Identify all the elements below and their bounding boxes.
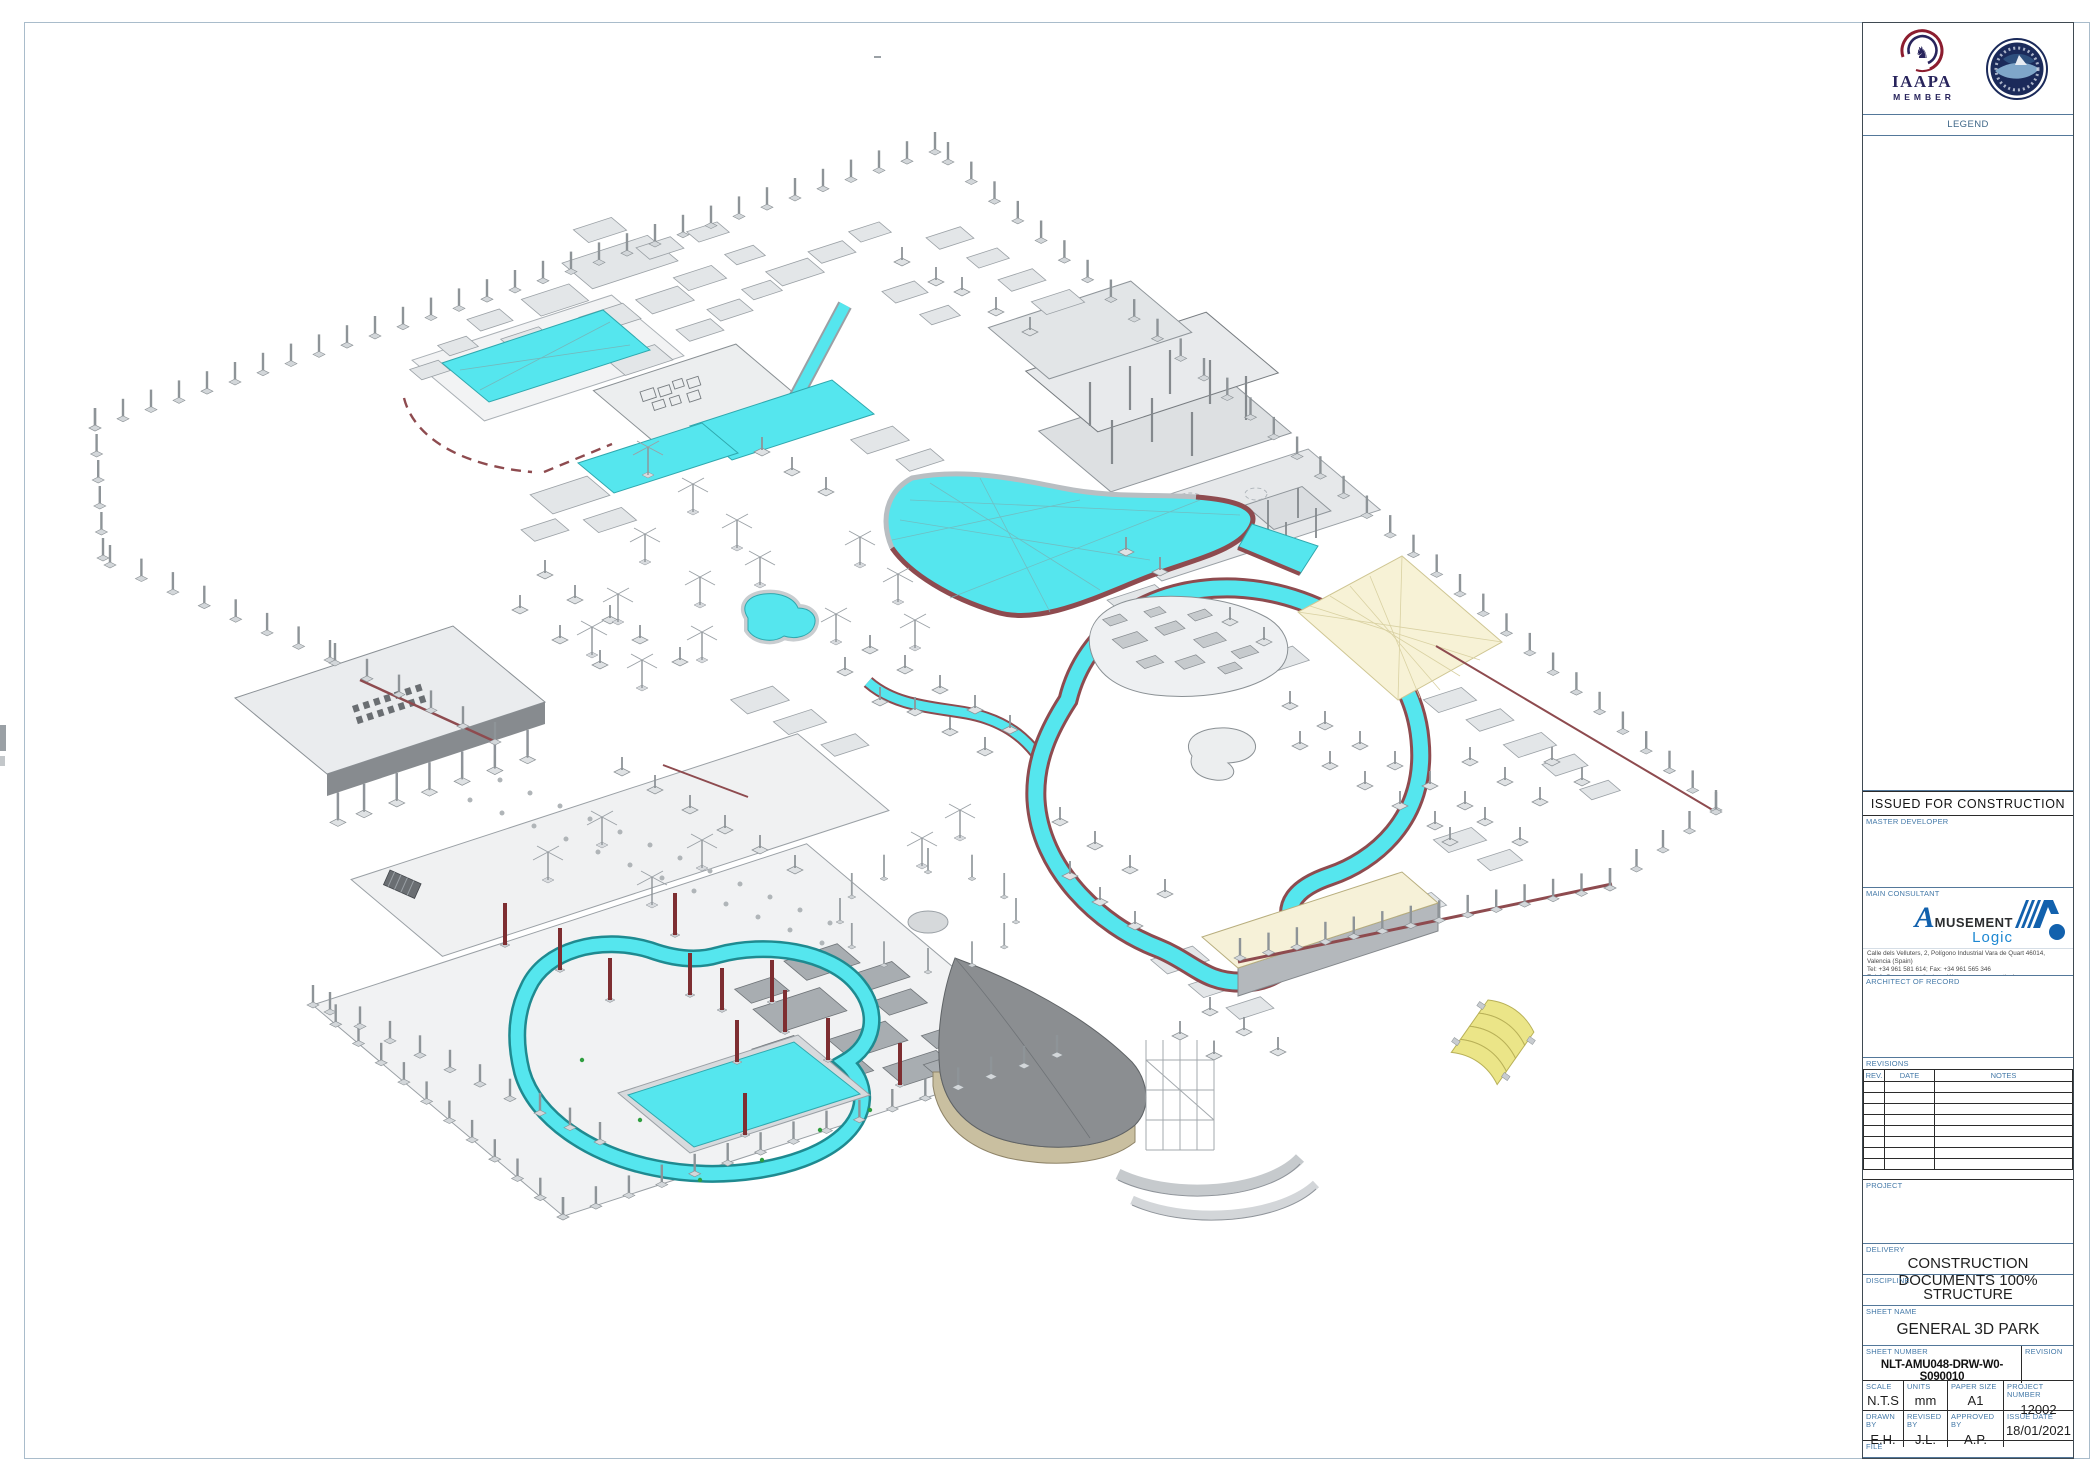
issued-for-construction-banner: ISSUED FOR CONSTRUCTION xyxy=(1863,791,2073,816)
issue-date-value: 18/01/2021 xyxy=(2004,1423,2073,1438)
revised-by-label: REVISED BY xyxy=(1904,1411,1947,1430)
legend-header: LEGEND xyxy=(1863,115,2073,136)
boat-roof xyxy=(939,958,1146,1147)
shade-sail xyxy=(1298,556,1502,700)
revision-row xyxy=(1864,1126,2073,1137)
notes-col-header: NOTES xyxy=(1935,1070,2073,1082)
ring-hub-slab xyxy=(908,911,948,933)
approved-by-value: A.P. xyxy=(1948,1432,2003,1447)
river-connector xyxy=(868,682,1044,764)
architect-of-record-box: ARCHITECT OF RECORD xyxy=(1863,976,2073,1058)
amusement-logic-mark-icon xyxy=(2013,898,2069,944)
brand-sub: Logic xyxy=(1972,929,2013,946)
3d-park-isometric-drawing xyxy=(0,0,2100,1483)
discipline-box: DISCIPLINE STRUCTURE xyxy=(1863,1275,2073,1306)
sheet-number-row: SHEET NUMBER NLT-AMU048-DRW-W0- S090010 … xyxy=(1863,1346,2073,1381)
issue-date-label: ISSUE DATE xyxy=(2004,1411,2073,1421)
paper-size-value: A1 xyxy=(1948,1393,2003,1408)
delivery-box: DELIVERY CONSTRUCTION DOCUMENTS 100% xyxy=(1863,1244,2073,1275)
project-label: PROJECT xyxy=(1863,1180,2073,1190)
approved-by-label: APPROVED BY xyxy=(1948,1411,2003,1430)
sheet-name-label: SHEET NAME xyxy=(1863,1306,2073,1316)
discipline-value: STRUCTURE xyxy=(1863,1287,2073,1303)
drawn-by-value: E.H. xyxy=(1863,1432,1903,1447)
iaapa-member-logo: ♞ IAAPA MEMBER xyxy=(1887,27,1957,111)
scrollbar-artifact xyxy=(0,756,5,766)
revision-row xyxy=(1864,1137,2073,1148)
revisions-table-body xyxy=(1864,1082,2073,1170)
sheet-name-box: SHEET NAME GENERAL 3D PARK xyxy=(1863,1306,2073,1346)
iaapa-wordmark: IAAPA xyxy=(1892,72,1952,91)
title-block: ♞ IAAPA MEMBER LEGEND ISSUED FOR CONSTRU… xyxy=(1862,22,2074,1459)
revisions-box: REVISIONS REV. DATE NOTES xyxy=(1863,1058,2073,1180)
revision-row xyxy=(1864,1115,2073,1126)
address-line-2: Tel: +34 961 581 614; Fax: +34 961 565 3… xyxy=(1867,966,2069,974)
scaffolding xyxy=(1146,1040,1214,1150)
canopy-building xyxy=(1202,872,1612,996)
revisions-table: REV. DATE NOTES xyxy=(1863,1069,2073,1170)
logo-strip: ♞ IAAPA MEMBER xyxy=(1863,23,2073,115)
legend-body xyxy=(1863,136,2073,791)
revised-by-value: J.L. xyxy=(1904,1432,1947,1447)
amusement-logic-wordmark: AMUSEMENT Logic xyxy=(1867,898,2013,945)
master-developer-label: MASTER DEVELOPER xyxy=(1863,816,2073,826)
curved-ramp xyxy=(1118,1158,1300,1190)
consultant-address: Calle dels Velluters, 2, Polígono Indust… xyxy=(1863,948,2073,976)
waterpark-badge-icon xyxy=(1985,37,2049,101)
brand-initial: A xyxy=(1915,901,1935,934)
units-value: mm xyxy=(1904,1393,1947,1408)
revision-label: REVISION xyxy=(2022,1346,2073,1356)
inner-pad xyxy=(1188,728,1255,780)
revision-row xyxy=(1864,1082,2073,1093)
sheet-name-value: GENERAL 3D PARK xyxy=(1863,1321,2073,1339)
scale-value: N.T.S xyxy=(1863,1393,1903,1408)
brand-rest: MUSEMENT xyxy=(1935,915,2013,930)
address-line-1: Calle dels Velluters, 2, Polígono Indust… xyxy=(1867,950,2069,966)
master-developer-box: MASTER DEVELOPER xyxy=(1863,816,2073,888)
discipline-label: DISCIPLINE xyxy=(1863,1275,2073,1285)
caterpillar-canopy xyxy=(1446,990,1543,1088)
revision-row xyxy=(1864,1104,2073,1115)
revisions-label: REVISIONS xyxy=(1863,1058,2073,1068)
revision-row xyxy=(1864,1159,2073,1170)
architect-label: ARCHITECT OF RECORD xyxy=(1863,976,2073,986)
vertical-scrollbar-thumb[interactable] xyxy=(0,725,6,751)
project-number-label: PROJECT NUMBER xyxy=(2004,1381,2073,1400)
project-box: PROJECT xyxy=(1863,1180,2073,1244)
member-wordmark: MEMBER xyxy=(1893,92,1955,102)
paper-size-label: PAPER SIZE xyxy=(1948,1381,2003,1391)
scale-label: SCALE xyxy=(1863,1381,1903,1391)
rev-col-header: REV. xyxy=(1864,1070,1885,1082)
drawn-by-label: DRAWN BY xyxy=(1863,1411,1903,1430)
carousel-horse-icon: ♞ xyxy=(1915,45,1929,62)
date-col-header: DATE xyxy=(1885,1070,1935,1082)
signatures-row: DRAWN BY E.H. REVISED BY J.L. APPROVED B… xyxy=(1863,1411,2073,1441)
sheet-number-value: NLT-AMU048-DRW-W0- S090010 xyxy=(1863,1359,2021,1383)
scale-row: SCALE N.T.S UNITS mm PAPER SIZE A1 PROJE… xyxy=(1863,1381,2073,1411)
main-consultant-box: MAIN CONSULTANT AMUSEMENT Logic Calle de… xyxy=(1863,888,2073,976)
revision-row xyxy=(1864,1093,2073,1104)
revision-row xyxy=(1864,1148,2073,1159)
splash-pad-island xyxy=(1089,596,1287,696)
top-tick-mark xyxy=(874,56,881,58)
units-label: UNITS xyxy=(1904,1381,1947,1391)
sheet-number-label: SHEET NUMBER xyxy=(1863,1346,2021,1356)
delivery-label: DELIVERY xyxy=(1863,1244,2073,1254)
main-consultant-label: MAIN CONSULTANT xyxy=(1863,888,2073,898)
kidney-pool xyxy=(745,594,815,641)
